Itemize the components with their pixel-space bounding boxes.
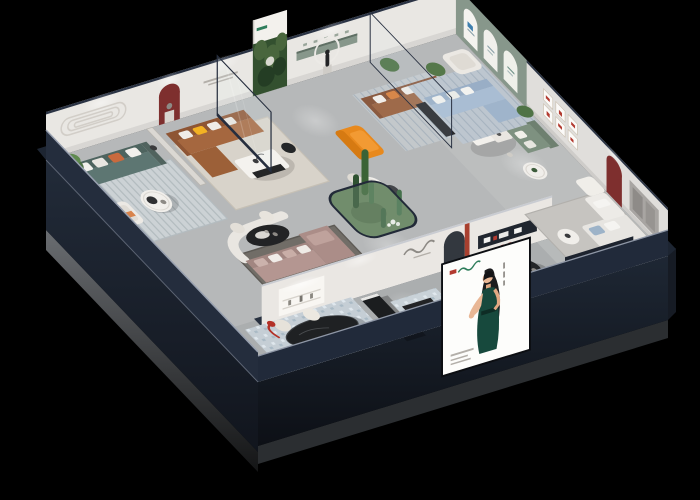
forest-mural-panel	[253, 10, 287, 97]
isometric-floorplan-svg	[0, 0, 700, 500]
showroom-render	[0, 0, 700, 500]
poster-side-text	[503, 262, 505, 286]
east-corner-cap	[668, 248, 676, 320]
